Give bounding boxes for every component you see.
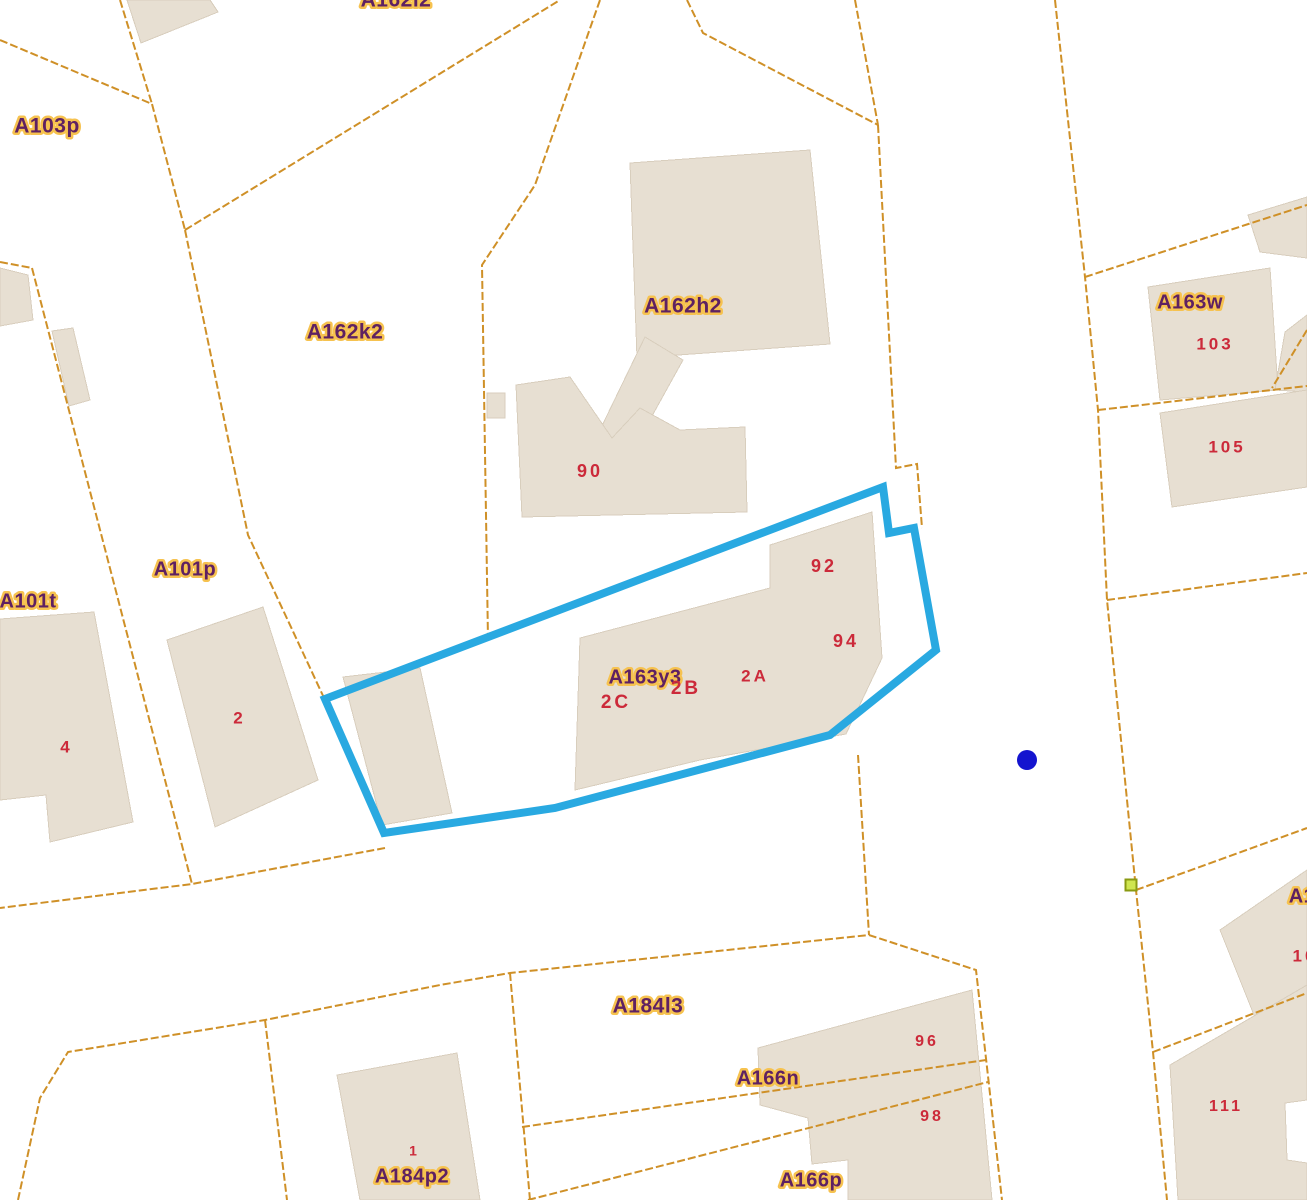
boundary <box>0 262 32 268</box>
building-number-94: 94 <box>833 631 859 651</box>
boundary <box>510 973 530 1200</box>
parcel-label-A162k2: A162k2 <box>307 321 384 344</box>
building-topright-corner <box>1248 197 1307 258</box>
boundary <box>185 0 560 230</box>
boundary <box>878 125 922 528</box>
parcel-label-A101p: A101p <box>154 558 217 580</box>
building-tiny-square <box>487 393 505 418</box>
building-number-111: 111 <box>1209 1098 1243 1115</box>
building-outbuilding-in-parcel <box>343 668 452 825</box>
parcel-label-A103p: A103p <box>14 115 80 138</box>
building-A162h2-block <box>630 150 830 358</box>
building-right-sliver <box>1275 315 1307 392</box>
building-number-2B: 2B <box>671 678 701 699</box>
building-number-105: 105 <box>1208 437 1245 456</box>
boundary <box>1136 828 1307 890</box>
boundary <box>858 755 869 935</box>
building-topleft-corner <box>127 0 218 43</box>
parcel-label-A101t: A101t <box>0 590 56 612</box>
map-canvas[interactable]: A103pA162l2A162k2A162h2A163wA101tA101pA1… <box>0 0 1307 1200</box>
building-number-90: 90 <box>577 461 603 481</box>
building-number-98: 98 <box>920 1108 944 1125</box>
building-number-2: 2 <box>233 708 242 727</box>
parcel-label-A163w: A163w <box>1157 291 1223 313</box>
building-number-2A: 2A <box>741 666 769 685</box>
parcel-label-A184l3: A184l3 <box>613 995 684 1018</box>
boundary <box>482 0 600 640</box>
boundary <box>687 0 878 125</box>
boundary <box>855 0 878 125</box>
building-number-103: 103 <box>1196 334 1233 353</box>
building-number-2C: 2C <box>601 692 631 713</box>
parcel-label-A162h2: A162h2 <box>644 295 722 318</box>
building-leftedge-small <box>0 268 33 326</box>
vertex-marker-square <box>1126 880 1137 891</box>
parcel-label-A162l2: A162l2 <box>361 0 432 12</box>
parcel-label-A166n: A166n <box>737 1067 800 1089</box>
parcel-label-A1: A1 <box>1289 885 1307 907</box>
building-number-1: 1 <box>409 1143 417 1159</box>
building-number-96: 96 <box>915 1033 939 1050</box>
boundary <box>265 1020 287 1200</box>
building-number-10: 10 <box>1293 946 1307 965</box>
parcel-label-A184p2: A184p2 <box>375 1165 449 1187</box>
building-92-94-2A <box>575 512 882 790</box>
boundary <box>152 104 185 230</box>
boundary <box>1107 573 1307 600</box>
building-number-92: 92 <box>811 556 837 576</box>
parcel-label-A166p: A166p <box>780 1169 843 1191</box>
building-111 <box>1170 985 1307 1200</box>
building-4 <box>0 612 133 842</box>
building-number-4: 4 <box>60 737 70 756</box>
boundary <box>0 40 152 104</box>
boundary <box>0 848 385 908</box>
point-marker-dot <box>1017 750 1037 770</box>
cadastral-map: A103pA162l2A162k2A162h2A163wA101tA101pA1… <box>0 0 1307 1200</box>
